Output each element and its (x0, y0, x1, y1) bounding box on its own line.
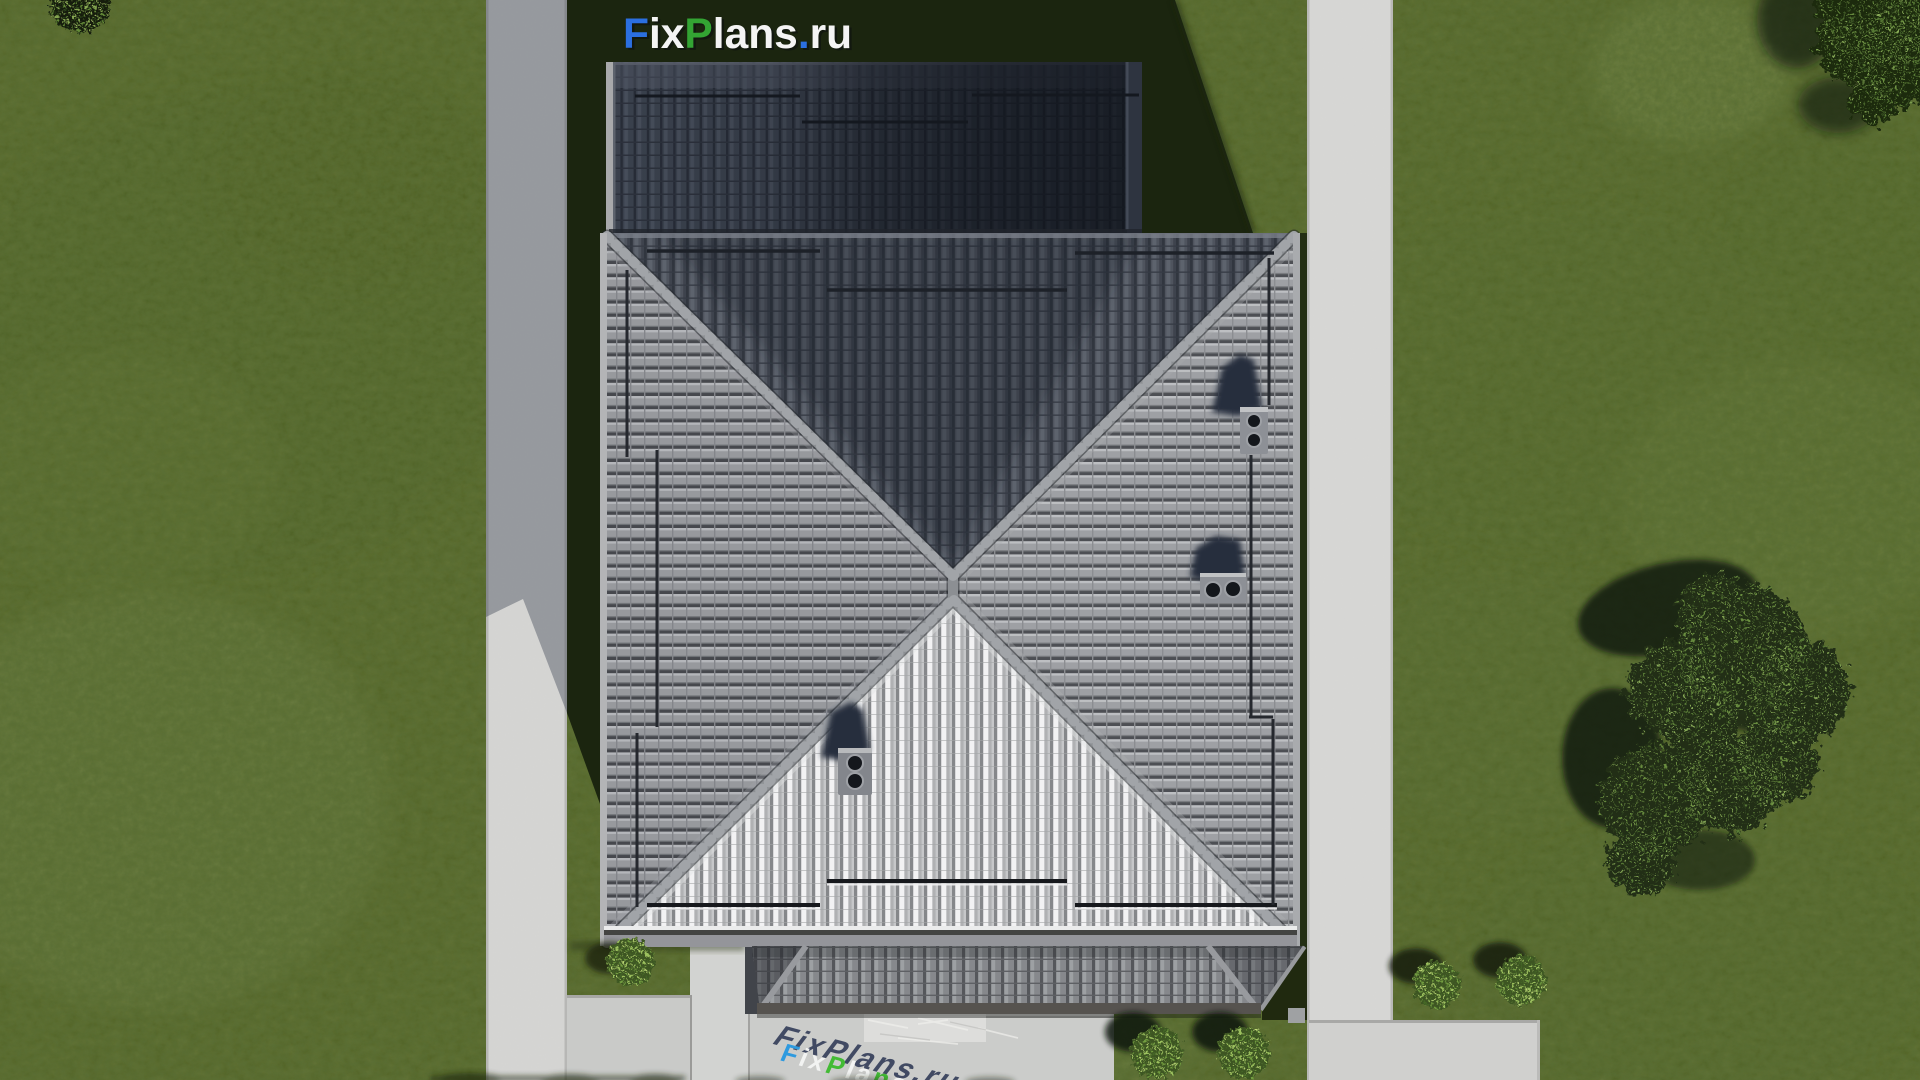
svg-text:FixPlans.ru: FixPlans.ru (623, 11, 852, 58)
